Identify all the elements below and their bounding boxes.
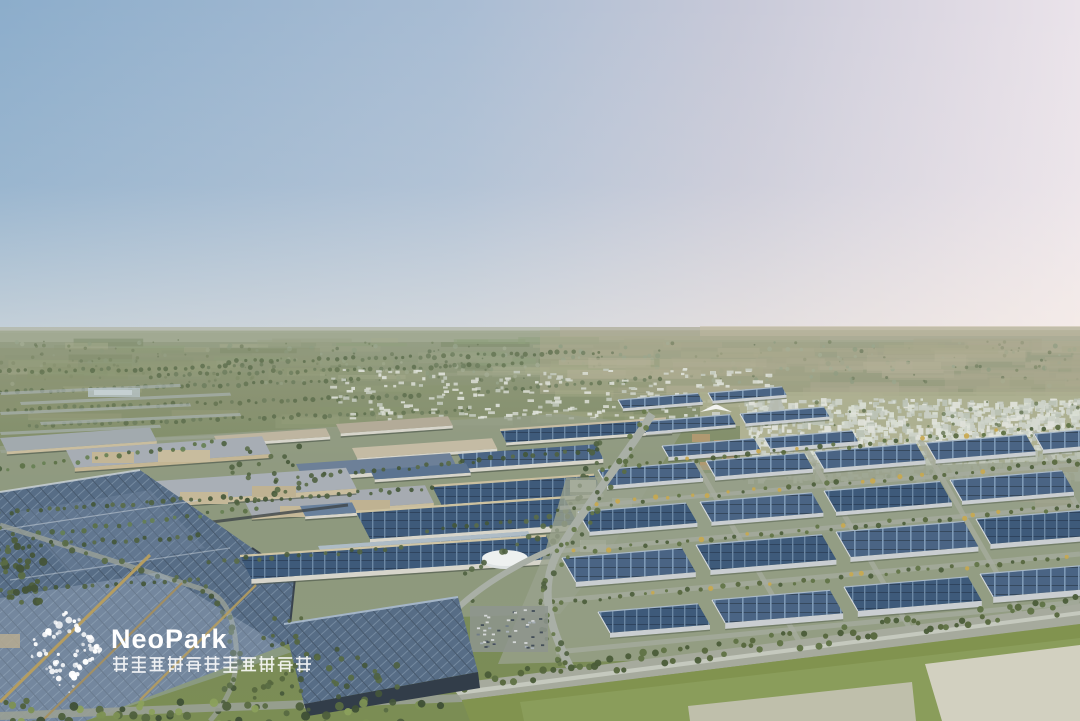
svg-text:NeoPark: NeoPark <box>111 624 228 654</box>
